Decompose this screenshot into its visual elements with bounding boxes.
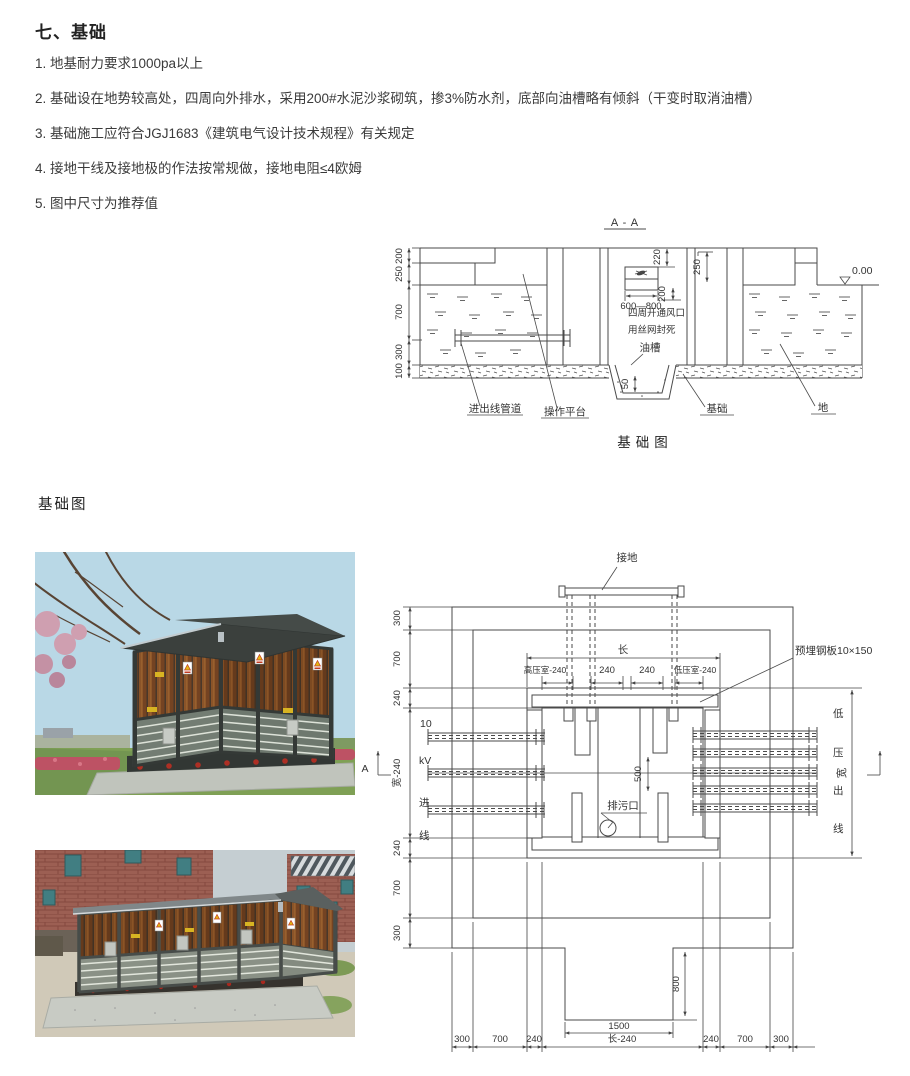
plan-steel-plate-label: 预埋钢板10×150: [700, 644, 872, 702]
section-markers: A: [361, 751, 880, 775]
aa-note-vent-2: 用丝网封死: [628, 324, 676, 336]
corner-bracket: [218, 632, 224, 642]
plan-bottom-dim: 700: [737, 1034, 753, 1045]
plan-right-text: 压: [833, 747, 844, 759]
plan-label-steel-plate: 预埋钢板10×150: [795, 644, 872, 657]
aa-section-svg: A - A: [395, 212, 910, 462]
plan-right-text: 线: [833, 822, 844, 835]
meter-box: [177, 936, 188, 950]
plan-dim-hv-room: 高压室-240: [524, 665, 567, 675]
plan-left-dim: 300: [392, 610, 403, 626]
photo-substation-park: [35, 552, 355, 795]
warning-sign: [313, 658, 322, 670]
spec-item: 5. 图中尺寸为推荐值: [35, 197, 895, 211]
plan-dim-length: 长: [618, 644, 629, 656]
plan-bottom-dim: 300: [454, 1034, 470, 1045]
plan-left-dim: 240: [392, 840, 403, 856]
plan-side-texts: 10 kV 进 线 低 压 出 线: [419, 707, 844, 842]
warning-sign: [255, 652, 264, 664]
plan-dim-lv-room: 低压室-240: [674, 665, 717, 675]
plan-right-text: 出: [833, 784, 844, 797]
warning-sign: [155, 920, 163, 931]
aa-label-ground: 地: [818, 401, 829, 414]
plan-dim-240: 240: [639, 665, 655, 676]
aa-dim-300: 300: [395, 344, 405, 360]
foundation-plan-drawing: 接地: [355, 545, 910, 1076]
spec-item: 4. 接地干线及接地极的作法按常规做，接地电阻≤4欧姆: [35, 162, 895, 176]
label-tag: [245, 922, 254, 926]
aa-label-conduit: 进出线管道: [469, 402, 522, 415]
aa-level-value: 0.00: [852, 265, 873, 277]
label-tag: [147, 707, 157, 712]
label-tag: [155, 672, 164, 677]
aa-oil-groove-labels: 油槽 50: [620, 341, 661, 392]
photo-substation-street: [35, 850, 355, 1037]
plan-section-marker-a: A: [361, 763, 368, 775]
plan-left-dim: 300: [392, 925, 403, 941]
warning-sign: [213, 912, 221, 923]
photo1-illustration: [35, 552, 355, 795]
aa-note-vent-1: 四周开通风口: [628, 308, 685, 319]
plan-bottom-dim: 700: [492, 1034, 508, 1045]
plan-right-text: 低: [833, 707, 844, 720]
meter-box: [163, 728, 175, 744]
label-tag: [283, 708, 293, 713]
plan-left-dim: 240: [392, 690, 403, 706]
plan-svg: 接地: [355, 545, 910, 1076]
aa-dim-220: 220: [652, 249, 663, 265]
spec-item: 3. 基础施工应符合JGJ1683《建筑电气设计技术规程》有关规定: [35, 127, 895, 141]
warning-sign: [287, 918, 295, 929]
aa-label-oil-groove: 油槽: [640, 341, 661, 354]
distant-building: [43, 728, 73, 738]
plan-bottom-dim: 长-240: [608, 1033, 637, 1045]
spec-item: 2. 基础设在地势较高处，四周向外排水，采用200#水泥沙浆砌筑，掺3%防水剂，…: [35, 92, 895, 106]
plan-length-dimensions: 长 高压室-240 240 240 低压室-240: [524, 644, 720, 690]
aa-level-marker: 0.00: [840, 265, 873, 284]
aa-conduit-pipe: [455, 329, 570, 347]
aa-label-foundation: 基础: [707, 402, 728, 415]
label-tag: [131, 934, 140, 938]
plan-dim-width: 宽: [835, 767, 848, 778]
aa-left-dimension-chain: 200 250 700 300 100: [395, 248, 422, 379]
aa-dim-700: 700: [395, 304, 405, 320]
plan-left-text: kV: [419, 755, 431, 767]
plan-left-dim: 宽-240: [391, 759, 403, 788]
hedge: [35, 936, 63, 956]
spec-item: 1. 地基耐力要求1000pa以上: [35, 57, 895, 71]
plan-dim-240: 240: [599, 665, 615, 676]
plan-left-text: 线: [419, 829, 430, 842]
meter-box: [287, 720, 298, 735]
plan-bottom-dim: 240: [703, 1034, 719, 1045]
meter-box: [241, 930, 252, 944]
plan-left-dim: 700: [392, 651, 403, 667]
aa-section-drawing: A - A: [395, 212, 910, 462]
warning-sign: [183, 662, 192, 674]
corner-bracket: [278, 902, 283, 912]
aa-dim-50: 50: [620, 379, 631, 390]
aa-title: A - A: [611, 217, 639, 229]
aa-dim-200b: 200: [657, 286, 668, 302]
aa-dim-250b: 250: [692, 259, 703, 275]
plan-bottom-dim: 300: [773, 1034, 789, 1045]
plan-label-grounding: 接地: [617, 551, 638, 564]
aa-dim-100: 100: [395, 363, 405, 379]
plan-bottom-dimension-chain: 300 700 240 长-240 240 700 300: [452, 862, 815, 1052]
aa-vent-opening: [625, 267, 658, 290]
plan-label-drain: 排污口: [607, 799, 639, 812]
aa-dim-250: 250: [395, 266, 405, 282]
aa-dim-200: 200: [395, 248, 405, 264]
plan-left-text: 进: [419, 797, 430, 809]
spec-list: 1. 地基耐力要求1000pa以上 2. 基础设在地势较高处，四周向外排水，采用…: [35, 57, 895, 232]
aa-vent-dimensions: 220 600—800 200 250 四周开通风口 用丝网封死: [620, 249, 713, 336]
plan-bottom-dim: 240: [526, 1034, 542, 1045]
aa-label-platform: 操作平台: [544, 405, 586, 418]
document-page: 七、基础 1. 地基耐力要求1000pa以上 2. 基础设在地势较高处，四周向外…: [0, 0, 910, 1076]
plan-dim-500: 500: [633, 766, 644, 782]
plan-left-text: 10: [420, 718, 432, 730]
page-title: 七、基础: [35, 18, 107, 43]
aa-caption: 基础图: [617, 434, 673, 450]
plan-dim-800: 800: [671, 976, 682, 992]
label-tag: [185, 928, 194, 932]
photo2-illustration: [35, 850, 355, 1037]
plan-dim-1500: 1500: [608, 1021, 629, 1032]
meter-box: [105, 942, 116, 956]
plan-left-dim: 700: [392, 880, 403, 896]
photos-section-label: 基础图: [38, 493, 88, 514]
